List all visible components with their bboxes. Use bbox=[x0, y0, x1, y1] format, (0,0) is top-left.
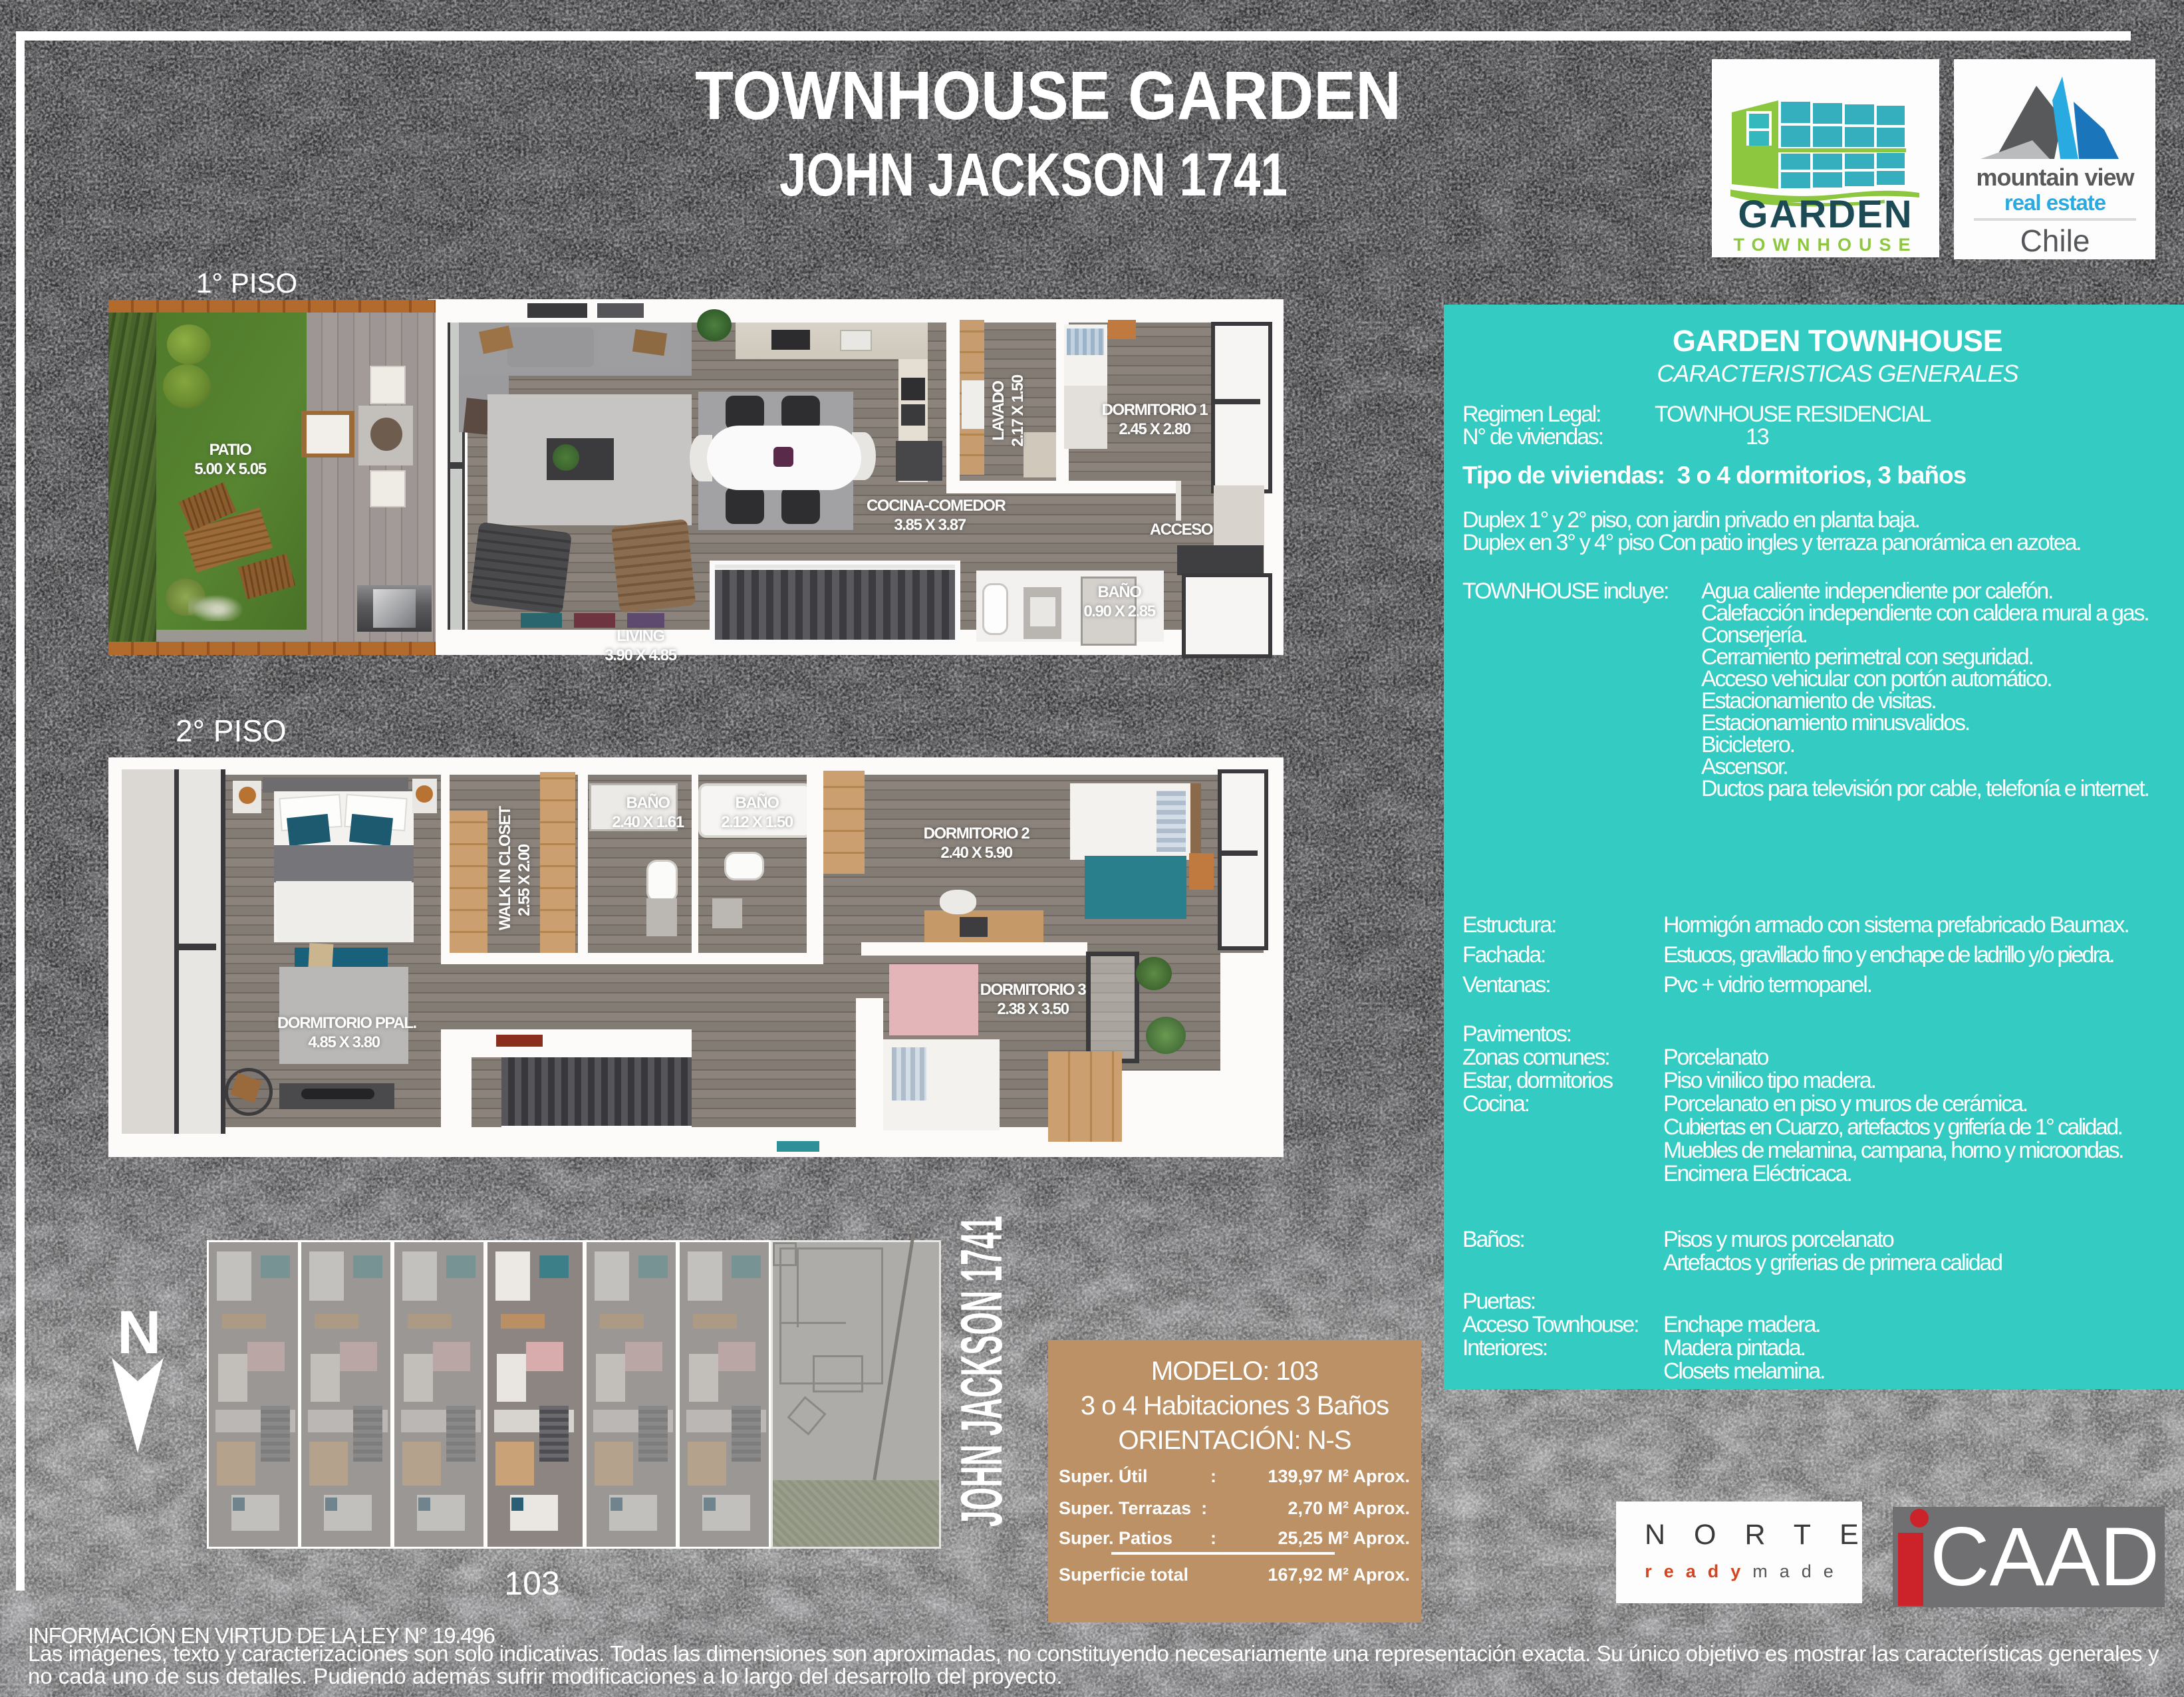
svg-text:real estate: real estate bbox=[2004, 190, 2106, 215]
svg-text:TOWNHOUSE: TOWNHOUSE bbox=[1733, 235, 1917, 255]
svg-text:mountain view: mountain view bbox=[1976, 164, 2135, 191]
svg-text:CAAD: CAAD bbox=[1930, 1511, 2159, 1603]
svg-text:GARDEN: GARDEN bbox=[1738, 193, 1913, 236]
svg-text:Chile: Chile bbox=[2020, 223, 2090, 257]
